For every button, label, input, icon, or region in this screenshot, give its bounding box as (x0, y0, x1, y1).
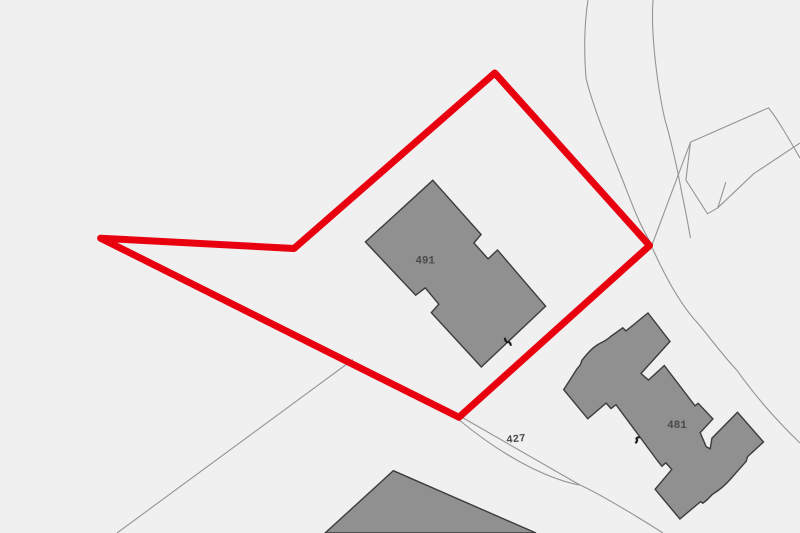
svg-text:427: 427 (506, 433, 527, 447)
svg-text:491: 491 (415, 255, 435, 267)
svg-text:481: 481 (667, 420, 687, 432)
